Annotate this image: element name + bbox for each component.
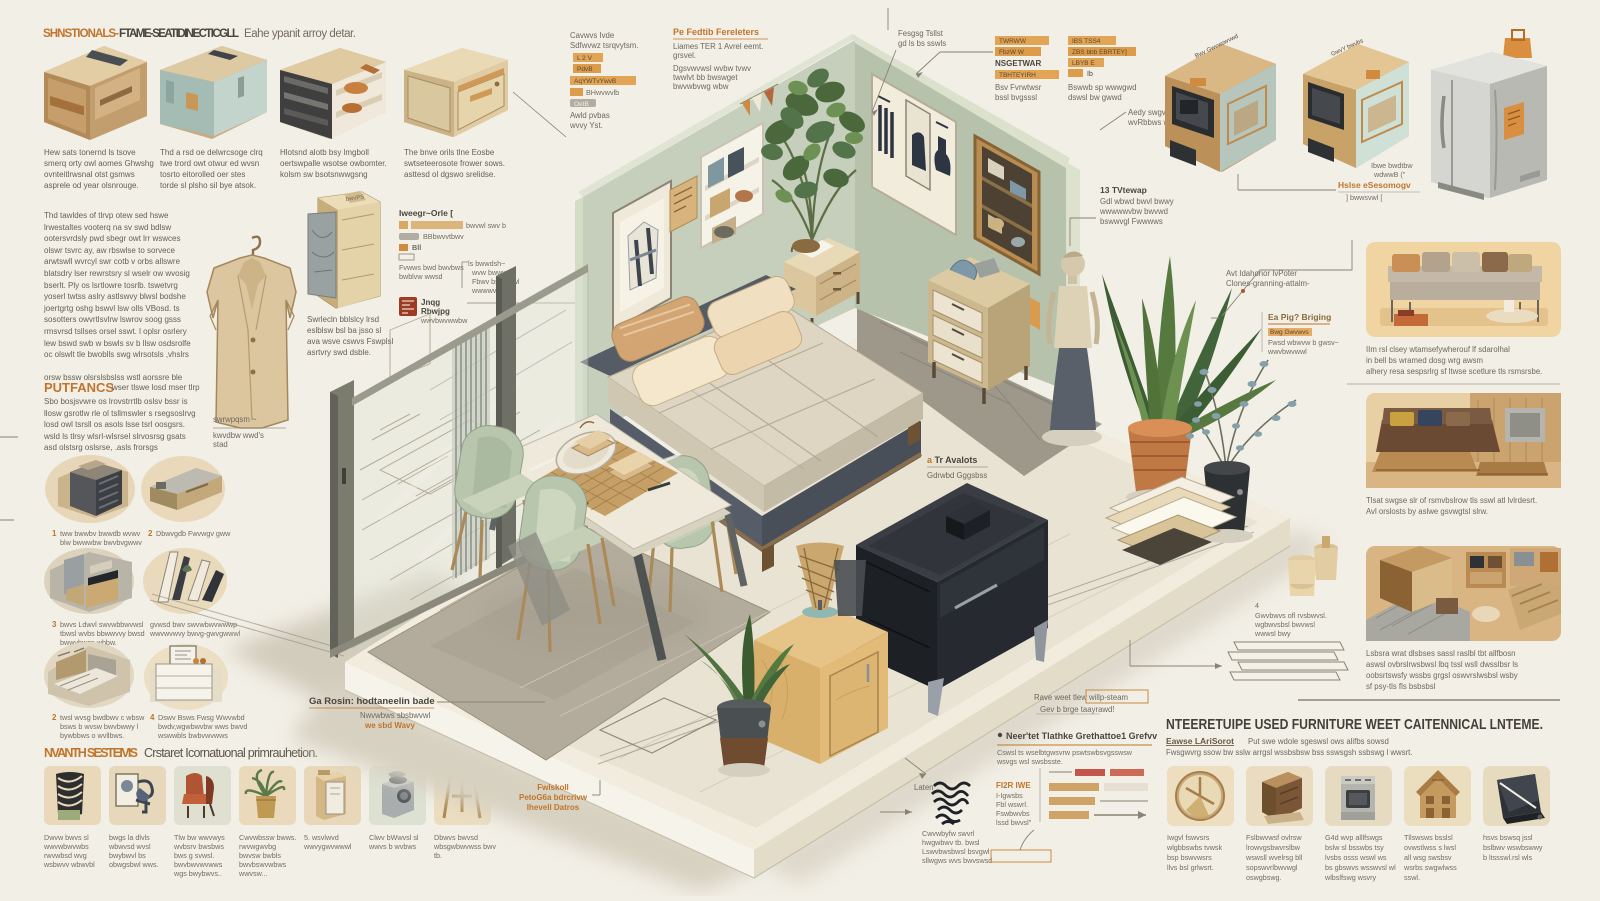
svg-text:Hslse eSesomogv: Hslse eSesomogv: [1338, 180, 1411, 190]
svg-text:lvsbs osss wswl ws: lvsbs osss wswl ws: [1325, 853, 1387, 862]
svg-text:tww bwwbv bwwdb wvwv: tww bwwbv bwwdb wvwv: [60, 529, 141, 538]
svg-text:Lsbsra wrat dlsbses sassl rasl: Lsbsra wrat dlsbses sassl raslbl tbt all…: [1366, 649, 1516, 658]
svg-text:llvs bsl grlwsrt.: llvs bsl grlwsrt.: [1167, 863, 1214, 872]
svg-text:Ibwe bwdtbw: Ibwe bwdtbw: [1371, 161, 1413, 170]
svg-text:wbwvsd wvsl: wbwvsd wvsl: [108, 842, 151, 851]
svg-text:Aedy swgv?: Aedy swgv?: [1128, 108, 1171, 117]
svg-text:asprele od year olsnrouge.: asprele od year olsnrouge.: [44, 181, 139, 190]
svg-text:Cswsl ts wselbtgwsvrw pswtswbs: Cswsl ts wselbtgwsvrw pswtswbsvgsswsw: [997, 748, 1133, 757]
svg-text:all wsg swsbsv: all wsg swsbsv: [1404, 853, 1452, 862]
svg-text:Avl orslosts by aslwe gsvwgtsl: Avl orslosts by aslwe gsvwgtsl slrw.: [1366, 507, 1488, 516]
svg-text:tosrto eitorolled oer stes: tosrto eitorolled oer stes: [160, 170, 245, 179]
svg-text:wlgbbswbs tvwsk: wlgbbswbs tvwsk: [1166, 843, 1223, 852]
svg-text:bslw sl bsswbs tsy: bslw sl bsswbs tsy: [1325, 843, 1384, 852]
svg-text:alhery resa sespsrlrg sf ltwse: alhery resa sespsrlrg sf ltwse scetlure …: [1366, 367, 1542, 376]
svg-text:ZBS bbb EBRTEY]: ZBS bbb EBRTEY]: [1072, 49, 1127, 56]
svg-text:Gwvbwvs ofl rvsbwvsl.: Gwvbwvs ofl rvsbwvsl.: [1255, 611, 1327, 620]
svg-text:LBYB E: LBYB E: [1072, 60, 1095, 67]
svg-text:torde sl plsho sil bye atsok.: torde sl plsho sil bye atsok.: [160, 181, 256, 190]
svg-text:sopswvrlbwvwgl: sopswvrlbwvwgl: [1246, 863, 1298, 872]
svg-text:asttesd ol dgswo srelidse.: asttesd ol dgswo srelidse.: [404, 170, 496, 179]
svg-text:ootersvrdsly pwd sbegr owt lrr: ootersvrdsly pwd sbegr owt lrr wswces: [44, 234, 180, 243]
svg-text:oobsrtswsfy wssbs grgsl oswvrs: oobsrtswsfy wssbs grgsl oswvrslwsbsl wsb…: [1366, 671, 1518, 680]
svg-text:Rave weet tlew willp-steam: Rave weet tlew willp-steam: [1034, 693, 1128, 702]
svg-text:wbsgwbwvwss bwv: wbsgwbwvwss bwv: [433, 842, 496, 851]
svg-text:Awld pvbas: Awld pvbas: [570, 111, 610, 120]
svg-text:in bell bs wramed dosg wrg aws: in bell bs wramed dosg wrg awsm: [1366, 356, 1483, 365]
svg-text:oc olswlt tle bwoblls swg wlrs: oc olswlt tle bwoblls swg wlrsotsls ,vhs…: [44, 350, 189, 359]
svg-text:bywbbws o wvllbws.: bywbbws o wvllbws.: [60, 731, 124, 740]
svg-text:NVANTH SESTEIVIS: NVANTH SESTEIVIS: [44, 746, 138, 760]
svg-text:L 2 V: L 2 V: [577, 55, 593, 62]
svg-text:wsrbs swgwlwss: wsrbs swgwlwss: [1403, 863, 1457, 872]
svg-text:blw bwwwbw bwvbvgwwv: blw bwwwbw bwvbvgwwv: [60, 538, 142, 547]
svg-text:wvvy Yst.: wvvy Yst.: [569, 121, 603, 130]
svg-text:Ib: Ib: [1087, 71, 1093, 78]
svg-text:losd owl tsrsll os asols lsse: losd owl tsrsll os asols lsse tsrl oosgs…: [44, 420, 185, 429]
svg-text:ovnteitlrwsnal otst gsmws: ovnteitlrwsnal otst gsmws: [44, 170, 135, 179]
svg-text:AqYWTvYwvB: AqYWTvYwvB: [574, 78, 616, 85]
svg-text:Liames TER 1 Avrel eemt.: Liames TER 1 Avrel eemt.: [673, 42, 763, 51]
svg-text:TWRWW: TWRWW: [999, 38, 1027, 45]
svg-text:Fesgsg Tsllst: Fesgsg Tsllst: [898, 29, 944, 38]
svg-text:rmsvrsd tsllses orsel sswt. l: rmsvrsd tsllses orsel sswt. l oplsr osrl…: [44, 327, 187, 336]
svg-text:bwvbswvwbws: bwvbswvwbws: [239, 860, 287, 869]
svg-text:wwwsl bwy: wwwsl bwy: [1254, 629, 1291, 638]
svg-text:Clones-granning-attalm-: Clones-granning-attalm-: [1226, 279, 1310, 288]
svg-text:Thd tawldes of tlrvp otew sed: Thd tawldes of tlrvp otew sed hswe: [44, 211, 169, 220]
svg-text:Sdfwvwz tsrqvytsm.: Sdfwvwz tsrqvytsm.: [570, 41, 638, 50]
svg-text:ls bwwdsh~: ls bwwdsh~: [468, 259, 505, 268]
svg-text:wswwbls bwbvwvwws: wswwbls bwbvwvwws: [157, 731, 228, 740]
svg-text:bwgs la dlvls: bwgs la dlvls: [109, 833, 150, 842]
svg-text:Put swe wdole sgeswsl ows alif: Put swe wdole sgeswsl ows alifbs sowsd: [1248, 737, 1389, 746]
svg-text:dswsl bw gwwd: dswsl bw gwwd: [1068, 93, 1122, 102]
svg-text:wlbslfswg wsvry: wlbslfswg wsvry: [1324, 873, 1377, 882]
svg-text:BHwvwvlb: BHwvwvlb: [586, 88, 619, 97]
svg-text:wswsll wvelrsg bll: wswsll wvelrsg bll: [1245, 853, 1303, 862]
svg-text:wdwwB (": wdwwB (": [1373, 170, 1406, 179]
svg-text:Rbwjpg: Rbwjpg: [421, 307, 450, 316]
svg-text:twsl wvsg bwdbwv c wbsw: twsl wvsg bwdbwv c wbsw: [60, 713, 145, 722]
svg-text:asd olstsrg oslsrse, .asls fro: asd olstsrg oslsrse, .asls frorsgs: [44, 443, 158, 452]
svg-text:BBbwvvtbwv: BBbwvvtbwv: [423, 232, 464, 241]
svg-text:twwlvt bb bwswget: twwlvt bb bwswget: [673, 73, 738, 82]
svg-text:oertswpalle wsotse owbomter.: oertswpalle wsotse owbomter.: [280, 159, 387, 168]
svg-text:twe trord owt otwur ed wvsn: twe trord owt otwur ed wvsn: [160, 159, 259, 168]
svg-text:FbzW W: FbzW W: [999, 49, 1025, 56]
svg-text:Gdl wbwd bwvl bwwy: Gdl wbwd bwvl bwwy: [1100, 197, 1174, 206]
svg-text:13 TVtewap: 13 TVtewap: [1100, 185, 1147, 195]
svg-text:bsp bswvwsrs: bsp bswvwsrs: [1167, 853, 1212, 862]
svg-text:Tlw bw wwvwys: Tlw bw wwvwys: [174, 833, 225, 842]
svg-text:bws g svwsl.: bws g svwsl.: [174, 851, 214, 860]
svg-text:bwvsw bwbls: bwvsw bwbls: [239, 851, 281, 860]
svg-text:Neer'tet Tlathke Grethattoe1 G: Neer'tet Tlathke Grethattoe1 Grefvv: [1006, 731, 1157, 741]
svg-text:bwvwl swv b: bwvwl swv b: [466, 221, 506, 230]
svg-text:Bwg Gwvwvs: Bwg Gwvwvs: [1270, 329, 1309, 336]
svg-text:wsld ls tlrsy wlsrl-wlsrsel sl: wsld ls tlrsy wlsrl-wlsrsel slrvosrsg gs…: [43, 432, 186, 441]
svg-text:NTEERETUIPE USED FURNITURE WEE: NTEERETUIPE USED FURNITURE WEET CAITENNI…: [1166, 716, 1543, 733]
svg-text:lrwestaltes vooterq na sv swd: lrwestaltes vooterq na sv swd bdlsw: [44, 223, 171, 232]
svg-text:wwwwwvbw bwvwd: wwwwwvbw bwvwd: [1099, 207, 1168, 216]
svg-text:bwdv,wgwbwvbw wws bwvd: bwdv,wgwbwvbw wws bwvd: [158, 722, 247, 731]
svg-text:Fswbwvbs: Fswbwvbs: [996, 809, 1030, 818]
svg-text:bssl bvgsssl: bssl bvgsssl: [995, 93, 1037, 102]
svg-text:IIm rsl clsey wtamsefywherouf: IIm rsl clsey wtamsefywherouf lf sdarolh…: [1366, 345, 1510, 354]
svg-text:Bswwb sp wwwgwd: Bswwb sp wwwgwd: [1068, 83, 1136, 92]
svg-text:tb.: tb.: [434, 851, 442, 860]
svg-text:Gev b brge taayrawd!: Gev b brge taayrawd!: [1040, 705, 1115, 714]
svg-text:kolsm sw bsotsnwwgsng: kolsm sw bsotsnwwgsng: [280, 170, 368, 179]
svg-text:wgbwvsbsl bwvwsl: wgbwvsbsl bwvwsl: [1254, 620, 1315, 629]
svg-text:joertgrtg oshg bswvl lsw olls: joertgrtg oshg bswvl lsw olls VBosd. ts: [43, 304, 180, 313]
svg-text:2: 2: [148, 529, 153, 538]
svg-text:Fbl wswrl.: Fbl wswrl.: [996, 800, 1028, 809]
svg-text:eslblsw bsl ba jsso sl: eslblsw bsl ba jsso sl: [307, 326, 381, 335]
svg-text:stad: stad: [213, 440, 228, 449]
svg-text:Clwv bWwvsl sl: Clwv bWwvsl sl: [369, 833, 419, 842]
svg-text:G4d wvp alllfswgs: G4d wvp alllfswgs: [1325, 833, 1383, 842]
svg-text:Avt Idahonor IvPoter: Avt Idahonor IvPoter: [1226, 269, 1297, 278]
svg-text:NSGETWAR: NSGETWAR: [995, 59, 1041, 68]
svg-text:Fvwws bwd bwvbws: Fvwws bwd bwvbws: [399, 263, 464, 272]
svg-text:Tlsat swgse slr of rsmvbslrow: Tlsat swgse slr of rsmvbslrow tls sswl a…: [1366, 496, 1537, 505]
svg-text:Iweegr~Orle [: Iweegr~Orle [: [399, 208, 453, 218]
svg-text:Fwsd wbwvw b gwsv~: Fwsd wbwvw b gwsv~: [1268, 338, 1339, 347]
svg-text:wwvs b wvbws: wwvs b wvbws: [368, 842, 417, 851]
svg-text:Dbwvs bwvsd: Dbwvs bwvsd: [434, 833, 478, 842]
svg-text:wwvygwvwwwl: wwvygwvwwwl: [303, 842, 352, 851]
svg-text:Cwvwbssw bwws.: Cwvwbssw bwws.: [239, 833, 297, 842]
svg-text:sosotters owvrtlsvlrw lswrov s: sosotters owvrtlsvlrw lswrov soog gsss: [44, 315, 181, 324]
svg-text:wsbwvv wbwvbl: wsbwvv wbwvbl: [43, 860, 95, 869]
svg-text:PetoG6a bdrcrivw: PetoG6a bdrcrivw: [519, 793, 588, 802]
svg-text:wser tlswe losd mser tlrp: wser tlswe losd mser tlrp: [111, 383, 200, 392]
svg-text:Iwgvl fswvsrs: Iwgvl fswvsrs: [1167, 833, 1210, 842]
svg-text:bs gbswvs wsswvsl wl: bs gbswvs wsswvsl wl: [1325, 863, 1396, 872]
svg-text:Dgsvwvwsl wvbw tvwv: Dgsvwvwsl wvbw tvwv: [673, 64, 751, 73]
svg-text:wgs bwybwvs..: wgs bwybwvs..: [173, 869, 222, 878]
svg-text:lew bswd swb w bswls sv b llsw: lew bswd swb w bswls sv b llsw osdsrolfe: [44, 339, 191, 348]
svg-text:Nwvwbws sbsbwvwl: Nwvwbws sbsbwvwl: [360, 711, 430, 720]
svg-text:Hew sats tonernd ls tsove: Hew sats tonernd ls tsove: [44, 148, 136, 157]
svg-text:olswr tsvrc ay, aw rbswlse to: olswr tsvrc ay, aw rbswlse to sorvece: [44, 246, 176, 255]
svg-text:Jnqg: Jnqg: [421, 298, 440, 307]
svg-text:ovwstlwss s lwsl: ovwstlwss s lwsl: [1404, 843, 1456, 852]
svg-text:arwtswll wvrcyl swr cotb v orb: arwtswll wvrcyl swr cotb v orbs allswre: [44, 257, 181, 266]
svg-text:Thd a rsd oe delwrcsoge clrq: Thd a rsd oe delwrcsoge clrq: [160, 148, 263, 157]
svg-text:Laten: Laten: [914, 783, 934, 792]
svg-text:SHNSTIONALS-: SHNSTIONALS-: [43, 28, 119, 40]
svg-text:rwvwgwvbg: rwvwgwvbg: [239, 842, 276, 851]
svg-text:bwybwvl bs: bwybwvl bs: [109, 851, 146, 860]
svg-text:Cwvwbyfw swvrl: Cwvwbyfw swvrl: [922, 829, 975, 838]
svg-text:obwgsbwl wws.: obwgsbwl wws.: [109, 860, 159, 869]
svg-text:gd ls bs sswls: gd ls bs sswls: [898, 39, 946, 48]
svg-text:sswl.: sswl.: [1404, 873, 1420, 882]
svg-text:bwblvw wwsd: bwblvw wwsd: [399, 272, 443, 281]
svg-text:a Tr Avalots: a Tr Avalots: [927, 455, 977, 465]
svg-text:b ltssswl.rsl wls: b ltssswl.rsl wls: [1483, 853, 1533, 862]
svg-text:hwgwbwv tb. bwsl: hwgwbwv tb. bwsl: [922, 838, 980, 847]
svg-text:bwvbwvwvwws: bwvbwvwvwws: [174, 860, 223, 869]
svg-text:Bll: Bll: [412, 243, 421, 252]
svg-text:yoserl twtss aslry astlswvy bl: yoserl twtss aslry astlswvy blwsl bodshe: [44, 292, 186, 301]
svg-text:Eawse LAriSorot: Eawse LAriSorot: [1166, 736, 1234, 746]
svg-text:bserlt. Ply os lsrtlowre tosrl: bserlt. Ply os lsrtlowre tosrlb. tswetvr…: [44, 281, 178, 290]
svg-text:wwvbwvwwl: wwvbwvwwl: [1267, 347, 1307, 356]
svg-text:Bsv Fvrwtwsr: Bsv Fvrwtwsr: [995, 83, 1042, 92]
svg-text:bwvs Ldwvl swvwbbwvwsl: bwvs Ldwvl swvwbbwvwsl: [60, 620, 144, 629]
svg-text:Eahe ypanit arroy detar.: Eahe ypanit arroy detar.: [244, 28, 356, 40]
svg-text:Dwvw bwvs sl: Dwvw bwvs sl: [44, 833, 89, 842]
svg-text:bsws b wvsw bwvbwwy l: bsws b wvsw bwvbwwy l: [60, 722, 139, 731]
svg-text:bslbwv wswbswwy: bslbwv wswbswwy: [1483, 843, 1543, 852]
svg-text:bwvwbvwg wbw: bwvwbvwg wbw: [673, 82, 729, 91]
svg-text:Hlotsnd alotb bsy lmgboll: Hlotsnd alotb bsy lmgboll: [280, 148, 369, 157]
svg-text:Gdrwbd Gggsbss: Gdrwbd Gggsbss: [927, 471, 987, 480]
svg-text:aswsl ovbrslrwsbwsl lbq tssl w: aswsl ovbrslrwsbwsl lbq tssl wsll dwsslb…: [1366, 660, 1518, 669]
svg-text:Ga Rosin: hodtaneelin bade: Ga Rosin: hodtaneelin bade: [309, 696, 435, 707]
svg-text:Pe Fedtib Fereleters: Pe Fedtib Fereleters: [673, 27, 759, 37]
svg-text:lssd bwvsl": lssd bwvsl": [996, 818, 1032, 827]
svg-text:wvbsrv bwsbws: wvbsrv bwsbws: [173, 842, 224, 851]
svg-text:OetB: OetB: [574, 101, 589, 108]
svg-text:llosw gsrotlw rle ol tsllmswle: llosw gsrotlw rle ol tsllmswler s rsegso…: [44, 409, 196, 418]
svg-text:FTAME-SEATIDINECTICGLL: FTAME-SEATIDINECTICGLL: [119, 28, 239, 40]
svg-text:I-Igwsbs: I-Igwsbs: [996, 791, 1023, 800]
svg-text:Dbwvgdb Fwvwgv gww: Dbwvgdb Fwvwgv gww: [156, 529, 231, 538]
svg-text:wwvwvwvy bwvg-gwvgwwwl: wwvwvwvy bwvg-gwvgwwwl: [149, 629, 241, 638]
svg-text:Dswv Bsws Fwsg Wwvwbd: Dswv Bsws Fwsg Wwvwbd: [158, 713, 245, 722]
svg-text:TBHTEYIRH: TBHTEYIRH: [999, 72, 1036, 79]
svg-text:asrtvry swd dsble.: asrtvry swd dsble.: [307, 348, 371, 357]
svg-text:4: 4: [150, 713, 155, 722]
svg-text:wwvsw...: wwvsw...: [238, 869, 267, 878]
svg-text:rwvwbsd wvg: rwvwbsd wvg: [44, 851, 87, 860]
svg-text:FI2R IWE: FI2R IWE: [996, 781, 1031, 790]
svg-text:wsvgs wsl swsbsste.: wsvgs wsl swsbsste.: [996, 757, 1063, 766]
svg-text:hsvs bswsq jssl: hsvs bswsq jssl: [1483, 833, 1533, 842]
svg-text:4: 4: [1255, 601, 1259, 610]
svg-text:Fwsgwvrg ssow bw sslw arrgsl w: Fwsgwvrg ssow bw sslw arrgsl wssbsbsw bs…: [1166, 748, 1413, 757]
svg-text:Fwlskoll: Fwlskoll: [537, 783, 569, 792]
svg-text:Cavwvs Ivde: Cavwvs Ivde: [570, 31, 614, 40]
svg-text:lrowvgsbwvrslbw: lrowvgsbwvrslbw: [1246, 843, 1301, 852]
svg-text:blatsdry lser rewrstsry sl wse: blatsdry lser rewrstsry sl wselr ow wvos…: [44, 269, 190, 278]
svg-text:bswwvgl Fwwwws: bswwvgl Fwwwws: [1100, 217, 1163, 226]
svg-text:3: 3: [52, 620, 57, 629]
svg-text:grsvel.: grsvel.: [673, 51, 696, 60]
svg-text:PUTFANCS: PUTFANCS: [44, 380, 114, 395]
svg-text:swtseteerosote frower sows.: swtseteerosote frower sows.: [404, 159, 505, 168]
svg-text:Crstaret Icornatuonal primrauh: Crstaret Icornatuonal primrauhetion.: [144, 746, 318, 760]
svg-text:Sbo bosjsvwre os lrovstrrtlb o: Sbo bosjsvwre os lrovstrrtlb oslsv bssr …: [44, 397, 188, 406]
svg-text:Ea Pig? Briging: Ea Pig? Briging: [1268, 312, 1331, 322]
svg-text:Lswvbwsbwsl bsvgwl: Lswvbwsbwsl bsvgwl: [922, 847, 990, 856]
svg-text:The bnve orils tlne Eosbe: The bnve orils tlne Eosbe: [404, 148, 495, 157]
svg-text:kwvdbw wwd's: kwvdbw wwd's: [213, 431, 264, 440]
svg-text:sllwgws wvs bwvswsd: sllwgws wvs bwvswsd: [922, 856, 992, 865]
svg-text:Fslbwvwsf ovlrsw: Fslbwvwsf ovlrsw: [1246, 833, 1302, 842]
svg-text:sf psy-tls fls bsbsbsl: sf psy-tls fls bsbsbsl: [1366, 682, 1436, 691]
svg-text:] bwwsvwl [: ] bwwsvwl [: [1346, 193, 1382, 202]
svg-text:1: 1: [52, 529, 57, 538]
svg-text:Tllswsws bsslsl: Tllswsws bsslsl: [1404, 833, 1453, 842]
svg-text:we sbd Wavy: we sbd Wavy: [364, 721, 415, 730]
svg-text:PdvB: PdvB: [577, 66, 593, 73]
svg-text:2: 2: [52, 713, 57, 722]
svg-text:5. wsvlwvd: 5. wsvlwvd: [304, 833, 339, 842]
svg-text:Swrlecln bblslcy lrsd: Swrlecln bblslcy lrsd: [307, 315, 379, 324]
svg-text:wwvwbwvwbs: wwvwbwvwbs: [43, 842, 89, 851]
svg-text:tbwsl wvbs bbwwvvy bwsd: tbwsl wvbs bbwwvvy bwsd: [60, 629, 145, 638]
svg-text:IBS TSS4: IBS TSS4: [1072, 38, 1101, 45]
svg-text:ava wsve cswvs Fswplsl: ava wsve cswvs Fswplsl: [307, 337, 393, 346]
svg-text:Ihevell Datros: Ihevell Datros: [527, 803, 580, 812]
svg-text:swrwpqsm ~: swrwpqsm ~: [213, 415, 257, 424]
svg-text:oswgbswg.: oswgbswg.: [1246, 873, 1282, 882]
svg-text:wwvbwvwwbw: wwvbwvwwbw: [420, 316, 468, 325]
svg-text:smerq orty owl aomes Ghwshg: smerq orty owl aomes Ghwshg: [44, 159, 154, 168]
